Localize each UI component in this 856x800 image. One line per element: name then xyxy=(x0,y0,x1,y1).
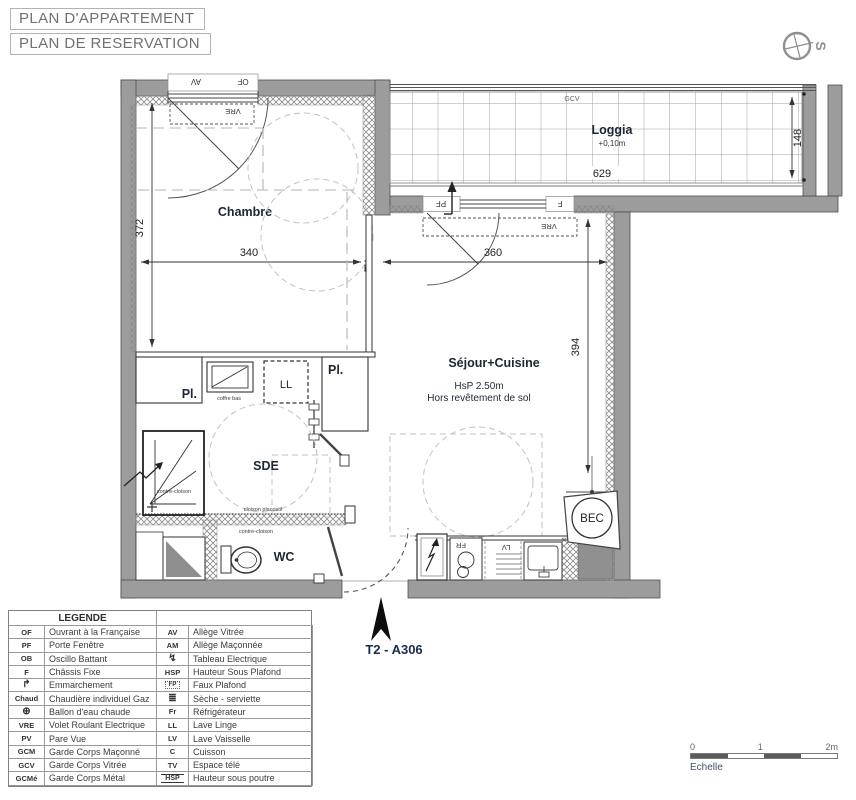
scale-caption: Echelle xyxy=(690,762,838,773)
entry-arrow xyxy=(371,597,391,641)
clearance-circle xyxy=(261,179,373,291)
legend-key: Fr xyxy=(157,706,189,719)
legend-header-spacer xyxy=(157,611,313,626)
dim-chambre-height: 372 xyxy=(134,219,146,237)
compass-south-label: S xyxy=(813,41,829,50)
window-of-label: OF xyxy=(237,77,248,86)
entry-door-swing xyxy=(344,528,408,592)
interior-partitions: Pl. coffre bas LL Pl. SDE contre-cloison… xyxy=(124,215,375,583)
legend-key: AM xyxy=(157,639,189,652)
legend-label: Faux Plafond xyxy=(189,679,313,692)
legend-label: Allège Maçonnée xyxy=(189,639,313,652)
legend-key: OB xyxy=(9,653,45,666)
window-f-label: F xyxy=(557,199,562,208)
legend-label: Lave Linge xyxy=(189,719,313,732)
legend-label: Cuisson xyxy=(189,746,313,759)
legend-label: Châssis Fixe xyxy=(45,666,157,679)
legend-label: Tableau Electrique xyxy=(189,653,313,666)
legend-key: TV xyxy=(157,759,189,772)
contre-cloison-label-1: contre-cloison xyxy=(157,489,191,495)
floor-plan-page: PLAN D'APPARTEMENT PLAN DE RESERVATION xyxy=(0,0,856,800)
radiator-icon: ≣ xyxy=(157,692,189,705)
legend-key: LL xyxy=(157,719,189,732)
legend-label: Réfrigérateur xyxy=(189,706,313,719)
scale-tick-2: 2m xyxy=(825,742,838,752)
legend-label: Garde Corps Maçonné xyxy=(45,746,157,759)
chambre-window: AV OF VRE xyxy=(168,74,268,198)
ceiling-height-note: HsP 2.50m xyxy=(454,381,503,392)
clearance-circle xyxy=(423,427,533,537)
legend-label: Volet Roulant Electrique xyxy=(45,719,157,732)
dim-chambre-width: 340 xyxy=(240,247,258,259)
legend-key: HSP xyxy=(157,666,189,679)
loggia-level-label: +0,10m xyxy=(599,139,626,148)
legend-key: VRE xyxy=(9,719,45,732)
closet-pl2-label: Pl. xyxy=(328,363,343,377)
closet-pl1-label: Pl. xyxy=(182,387,197,401)
toilet-tank xyxy=(221,546,231,573)
dishwasher-label: LV xyxy=(502,543,511,552)
compass: S xyxy=(783,33,829,60)
scale-tick-1: 1 xyxy=(758,742,763,752)
legend-key: AV xyxy=(157,626,189,639)
legend-key: PF xyxy=(9,639,45,652)
coffre-bas-label: coffre bas xyxy=(217,396,241,402)
room-label-wc: WC xyxy=(274,550,295,564)
water-heater-label: BEC xyxy=(580,513,604,525)
legend-title: LEGENDE xyxy=(9,611,157,626)
legend-key: LV xyxy=(157,732,189,745)
window-av-label: AV xyxy=(190,77,201,86)
dim-loggia-height: 148 xyxy=(792,129,804,147)
legend-key: F xyxy=(9,666,45,679)
vre-label-sejour: VRE xyxy=(541,222,556,231)
legend-label: Pare Vue xyxy=(45,732,157,745)
legend-label: Allège Vitrée xyxy=(189,626,313,639)
legend-label: Ouvrant à la Française xyxy=(45,626,157,639)
zigzag-electric-icon: ↯ xyxy=(157,653,189,666)
scale-segment xyxy=(764,754,801,758)
cloison-label: cloison placostil xyxy=(244,507,283,513)
wc-door xyxy=(328,527,342,576)
scale-tick-0: 0 xyxy=(690,742,695,752)
legend-label: Garde Corps Métal xyxy=(45,772,157,785)
legend-key: GCM xyxy=(9,746,45,759)
legend-label: Ballon d'eau chaude xyxy=(45,706,157,719)
legend-label: Oscillo Battant xyxy=(45,653,157,666)
lave-linge-label: LL xyxy=(280,379,292,391)
dim-loggia-width: 629 xyxy=(593,168,611,180)
kitchen-clearance xyxy=(390,434,542,536)
faux-plafond-dashes xyxy=(136,128,353,350)
legend-key: GCV xyxy=(9,759,45,772)
floor-note: Hors revêtement de sol xyxy=(427,393,530,404)
legend-key: OF xyxy=(9,626,45,639)
legend-key: Chaud xyxy=(9,692,45,705)
faux-plafond-icon: FP xyxy=(157,679,189,692)
water-heater-icon: ⊕ xyxy=(9,706,45,719)
scale-tick-labels: 0 1 2m xyxy=(690,742,838,752)
kitchen-sink xyxy=(524,542,562,580)
legend-key: PV xyxy=(9,732,45,745)
scale-bar-segments xyxy=(690,753,838,759)
scale-bar: 0 1 2m Echelle xyxy=(690,742,838,773)
scale-segment xyxy=(728,754,765,758)
step-arrow-icon: ↱ xyxy=(9,679,45,692)
dim-sejour-height: 394 xyxy=(570,338,582,356)
vre-label-chambre: VRE xyxy=(225,107,240,116)
contre-cloison-label-2: contre-cloison xyxy=(239,529,273,535)
legend-key: GCMé xyxy=(9,772,45,785)
fridge-label: FR xyxy=(455,541,466,550)
sejour-window: PF F VRE xyxy=(423,181,577,285)
legend-label: Garde Corps Vitrée xyxy=(45,759,157,772)
unit-label: T2 - A306 xyxy=(365,642,422,657)
legend-table: LEGENDE OFOuvrant à la FrançaiseAVAllège… xyxy=(8,610,312,787)
legend-key: C xyxy=(157,746,189,759)
window-pf-label: PF xyxy=(436,199,446,208)
legend-label: Hauteur Sous Plafond xyxy=(189,666,313,679)
scale-segment xyxy=(801,754,838,758)
legend-label: Emmarchement xyxy=(45,679,157,692)
room-label-sde: SDE xyxy=(253,459,279,473)
legend-label: Lave Vaisselle xyxy=(189,732,313,745)
legend-label: Espace télé xyxy=(189,759,313,772)
legend-label: Sèche - serviette xyxy=(189,692,313,705)
sde-door xyxy=(320,434,342,456)
room-label-loggia: Loggia xyxy=(592,123,634,137)
railing-gcv-label: GCV xyxy=(564,96,580,103)
door-post xyxy=(345,506,355,523)
scale-segment xyxy=(691,754,728,758)
legend-label: Chaudière individuel Gaz xyxy=(45,692,157,705)
sejour-room: Séjour+Cuisine HsP 2.50m Hors revêtement… xyxy=(390,356,620,580)
legend-label: Porte Fenêtre xyxy=(45,639,157,652)
hsp-beam-icon: HSP xyxy=(157,772,189,785)
clearance-circle xyxy=(209,404,317,512)
dim-sejour-width: 360 xyxy=(484,247,502,259)
legend-label: Hauteur sous poutre xyxy=(189,772,313,785)
room-label-sejour: Séjour+Cuisine xyxy=(448,356,539,370)
